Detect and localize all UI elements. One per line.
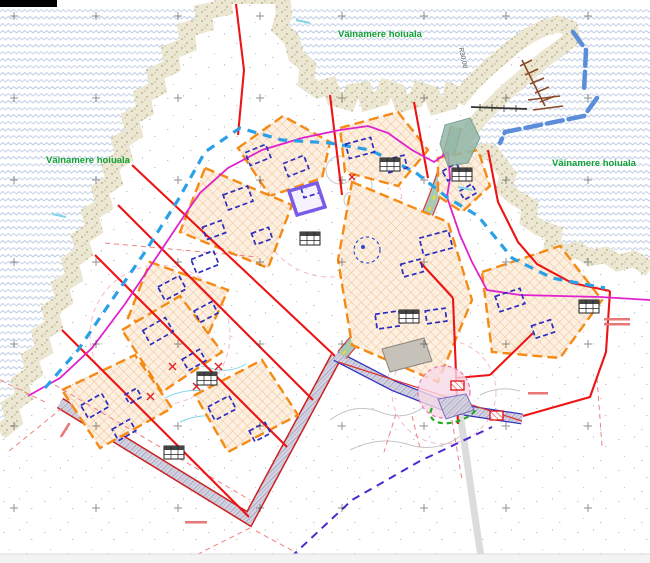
plot-data-table (197, 372, 217, 385)
label-protected-area-top: Väinamere hoiuala (338, 29, 423, 40)
plot-data-table (164, 446, 184, 459)
well-point (361, 245, 365, 249)
bottom-strip (0, 554, 650, 563)
plot-data-table (579, 300, 599, 313)
site-plan-map[interactable]: Väinamere hoiuala Väinamere hoiuala Väin… (0, 0, 650, 563)
plot-data-table (380, 158, 400, 171)
plot-data-table (452, 168, 472, 181)
label-protected-area-left: Väinamere hoiuala (46, 155, 131, 166)
utility-symbol (490, 411, 503, 420)
highlighted-building (289, 183, 325, 215)
corner-bar (0, 0, 57, 7)
plot-data-table (399, 310, 419, 323)
label-protected-area-right: Väinamere hoiuala (552, 158, 637, 169)
plot-data-table (300, 232, 320, 245)
utility-symbol (451, 381, 464, 390)
